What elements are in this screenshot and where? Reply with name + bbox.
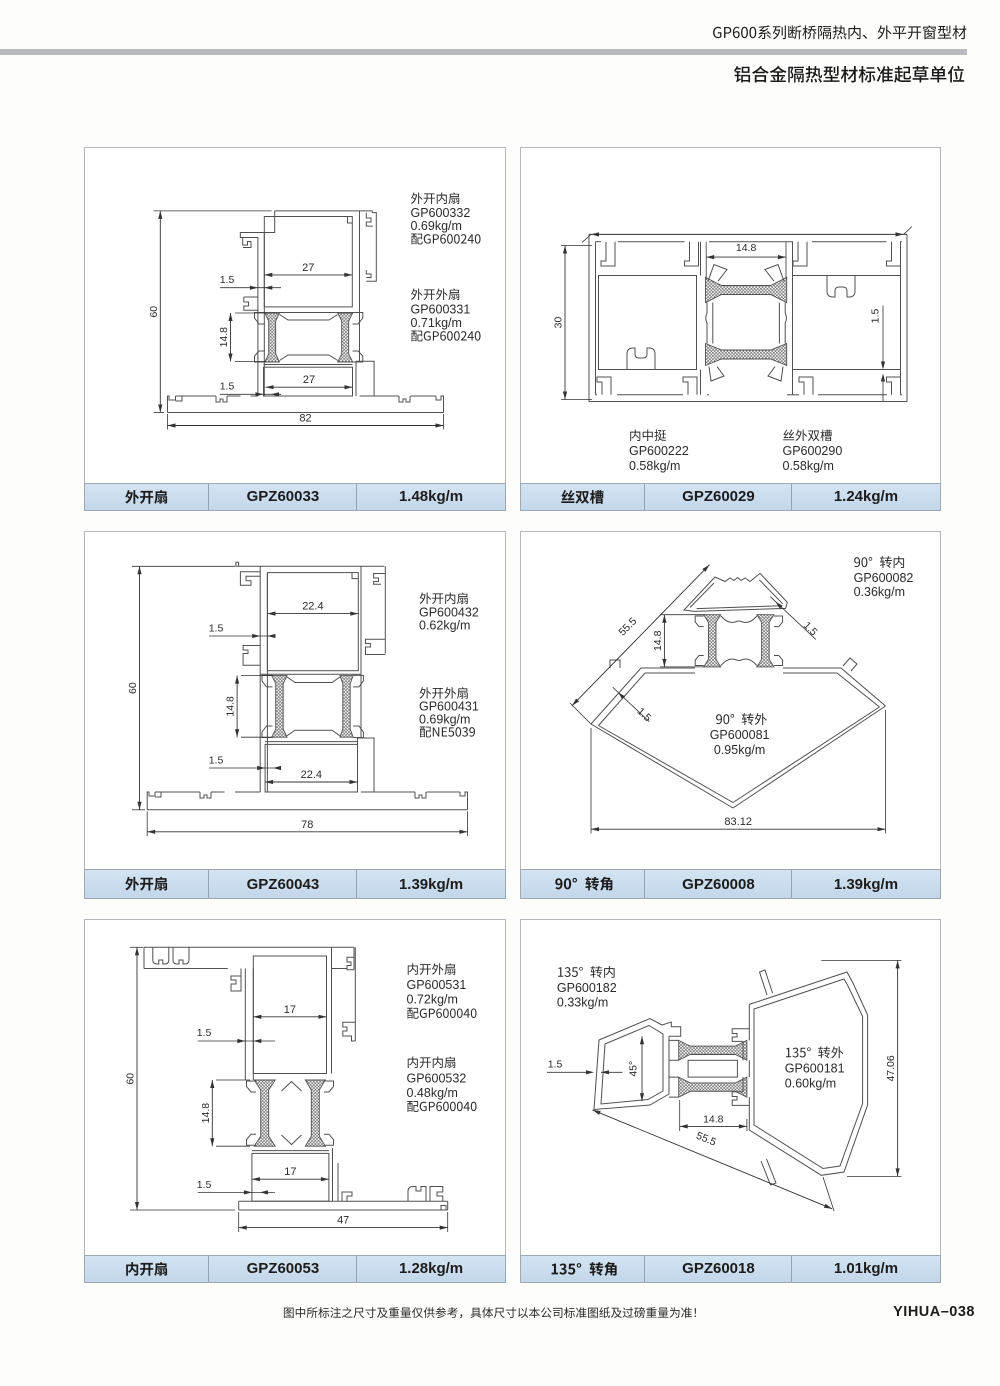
svg-text:1.5: 1.5 [208,754,223,766]
svg-text:0.62kg/m: 0.62kg/m [419,619,470,633]
svg-text:60: 60 [127,682,139,694]
svg-text:55.5: 55.5 [616,615,639,638]
svg-text:GP600331: GP600331 [410,302,470,316]
svg-text:30: 30 [553,316,565,328]
svg-text:1.5: 1.5 [219,380,234,392]
svg-text:1.5: 1.5 [548,1059,563,1071]
svg-text:1.5: 1.5 [196,1179,211,1191]
svg-text:GP600531: GP600531 [406,978,466,992]
svg-text:0.48kg/m: 0.48kg/m [406,1086,457,1100]
svg-text:27: 27 [302,261,314,273]
svg-text:GP600181: GP600181 [785,1061,845,1075]
svg-text:0.71kg/m: 0.71kg/m [410,316,461,330]
svg-text:0.95kg/m: 0.95kg/m [714,743,765,757]
svg-text:GP600332: GP600332 [410,206,470,220]
svg-text:0.60kg/m: 0.60kg/m [785,1076,836,1090]
svg-text:14.8: 14.8 [652,630,664,651]
svg-text:0.58kg/m: 0.58kg/m [629,459,680,473]
svg-text:22.4: 22.4 [300,769,321,781]
svg-text:GP600432: GP600432 [419,605,479,619]
svg-text:45°: 45° [628,1061,640,1077]
svg-text:14.8: 14.8 [218,326,230,347]
svg-text:GP600222: GP600222 [629,444,689,458]
svg-text:GP600532: GP600532 [406,1072,466,1086]
svg-text:47.06: 47.06 [885,1055,897,1081]
svg-text:14.8: 14.8 [736,242,757,254]
svg-text:22.4: 22.4 [302,601,323,613]
svg-text:60: 60 [147,305,159,317]
svg-text:82: 82 [299,412,311,424]
svg-text:1.5: 1.5 [196,1027,211,1039]
svg-text:17: 17 [283,1004,295,1016]
svg-text:14.8: 14.8 [199,1103,211,1124]
svg-text:14.8: 14.8 [703,1113,724,1125]
svg-text:55.5: 55.5 [694,1130,718,1149]
svg-text:0.69kg/m: 0.69kg/m [419,713,470,727]
svg-text:0.69kg/m: 0.69kg/m [410,219,461,233]
svg-text:0.33kg/m: 0.33kg/m [557,996,608,1010]
svg-text:0.58kg/m: 0.58kg/m [783,459,834,473]
svg-text:GP600081: GP600081 [710,728,770,742]
svg-text:GP600082: GP600082 [854,571,914,585]
svg-text:0.72kg/m: 0.72kg/m [406,993,457,1007]
svg-text:1.5: 1.5 [635,705,654,724]
svg-text:14.8: 14.8 [224,696,236,717]
svg-text:78: 78 [301,819,313,831]
svg-text:60: 60 [124,1073,136,1085]
svg-text:1.5: 1.5 [208,622,223,634]
svg-text:47: 47 [337,1215,349,1227]
svg-text:27: 27 [302,374,314,386]
svg-text:0.36kg/m: 0.36kg/m [854,585,905,599]
svg-text:GP600182: GP600182 [557,981,617,995]
svg-text:GP600290: GP600290 [783,444,843,458]
svg-text:1.5: 1.5 [801,619,820,638]
svg-text:17: 17 [284,1166,296,1178]
svg-text:1.5: 1.5 [870,308,882,323]
svg-text:1.5: 1.5 [219,274,234,286]
svg-text:83.12: 83.12 [724,816,752,828]
svg-text:GP600431: GP600431 [419,700,479,714]
